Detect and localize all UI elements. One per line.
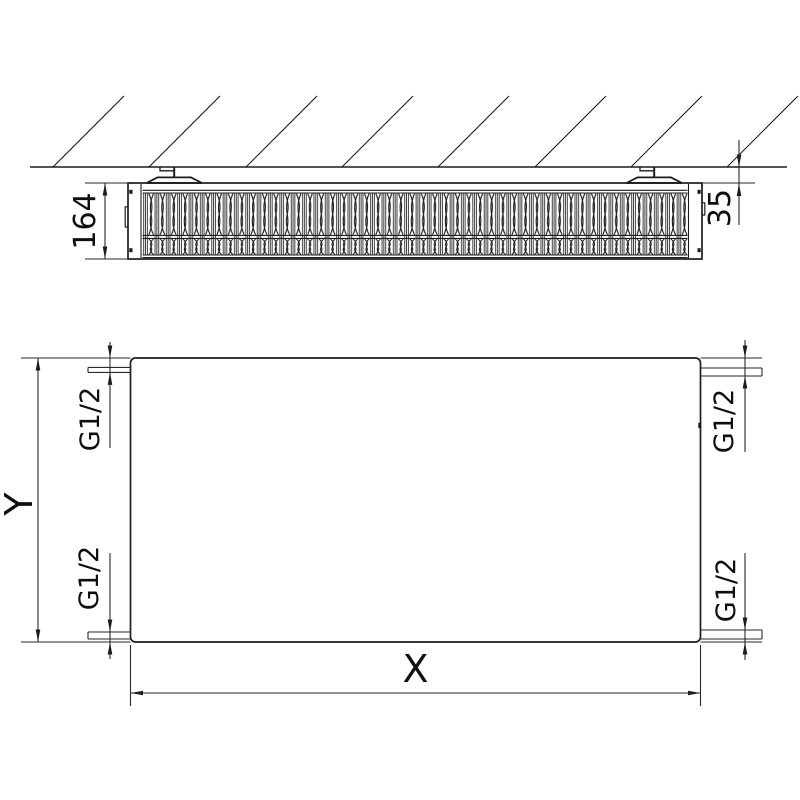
connection-thread-label: G1/2	[75, 387, 106, 451]
technical-drawing-page: 164 35 Y X G1/2	[0, 0, 800, 800]
weld-nub	[129, 248, 132, 252]
length-dimension-label: X	[402, 647, 428, 691]
mounting-bracket-left	[147, 167, 203, 184]
connection-thread-label: G1/2	[74, 546, 105, 610]
weld-nub	[698, 248, 701, 252]
connection-thread-label: G1/2	[709, 389, 740, 453]
wall-clearance-dimension: 35	[702, 140, 755, 227]
mounting-bracket-right	[627, 167, 683, 184]
depth-dimension: 164	[68, 183, 128, 259]
connection-thread-label: G1/2	[711, 558, 742, 622]
radiator-front-panel	[131, 358, 701, 642]
weld-nub	[698, 190, 701, 194]
connection-dimension-bottom-right: G1/2	[701, 553, 763, 660]
air-vent-mark	[698, 423, 701, 428]
height-dimension-label: Y	[0, 492, 41, 517]
fin-pattern	[143, 193, 688, 255]
height-dimension: Y	[0, 358, 131, 642]
wall-clearance-label: 35	[703, 189, 738, 227]
connection-dimension-top-right: G1/2	[701, 340, 763, 453]
depth-dimension-label: 164	[68, 192, 103, 249]
radiator-drawing: 164 35 Y X G1/2	[0, 0, 800, 800]
length-dimension: X	[131, 645, 701, 706]
wall-hatching	[53, 96, 798, 167]
weld-nub	[129, 190, 132, 194]
radiator-section-view	[125, 183, 705, 259]
